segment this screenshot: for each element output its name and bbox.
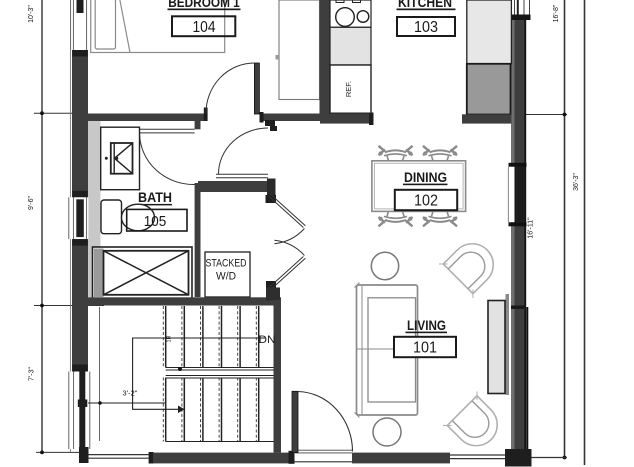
svg-text:102: 102 [414,193,438,210]
svg-text:STACKED: STACKED [206,258,247,270]
svg-text:105: 105 [144,213,167,230]
svg-text:36'-3": 36'-3" [573,173,580,191]
svg-text:9'-6": 9'-6" [28,196,35,210]
svg-text:REF.: REF. [344,81,353,97]
svg-text:3'-2": 3'-2" [123,389,138,398]
svg-text:BEDROOM 1: BEDROOM 1 [168,0,240,10]
svg-text:16'-8": 16'-8" [553,4,560,22]
svg-text:104: 104 [193,19,216,36]
svg-text:101: 101 [413,340,437,357]
svg-text:LIVING: LIVING [407,317,446,333]
svg-text:10'-3": 10'-3" [28,5,35,23]
svg-text:16'-11": 16'-11" [528,217,535,239]
svg-text:DN: DN [259,334,276,346]
svg-text:BATH: BATH [138,189,172,205]
svg-text:1R: 1R [167,335,173,342]
svg-text:DINING: DINING [404,169,447,185]
svg-text:103: 103 [414,19,438,36]
svg-text:W/D: W/D [216,271,236,283]
svg-text:KITCHEN: KITCHEN [398,0,452,10]
svg-text:7'-3": 7'-3" [29,367,36,381]
